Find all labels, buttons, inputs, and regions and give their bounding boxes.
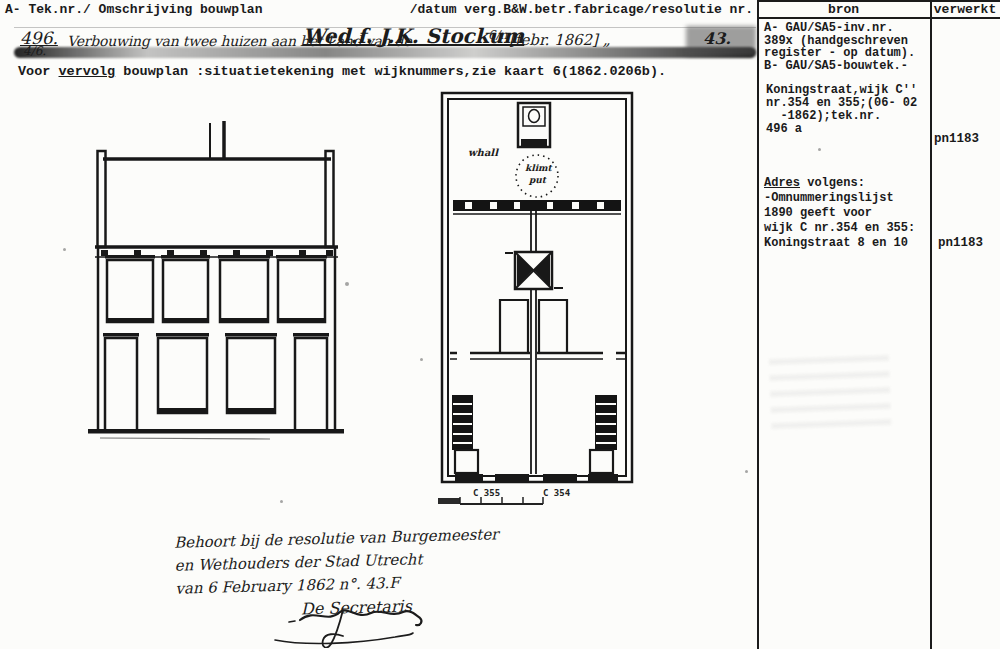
registration-resolution-number: 43. bbox=[703, 29, 731, 48]
scan-noise bbox=[420, 358, 423, 361]
scan-noise bbox=[345, 282, 349, 286]
vervolg-note: Voor vervolg bouwplan :situatietekening … bbox=[18, 64, 666, 79]
bron-line: A- GAU/SA5-inv.nr. bbox=[764, 22, 915, 35]
bron-line: wijk C nr.354 en 355: bbox=[764, 221, 915, 236]
header-left-label: A- Tek.nr./ Omschrijving bouwplan bbox=[5, 2, 262, 17]
note-prefix: Voor bbox=[18, 64, 59, 79]
floor-plan-drawing: whall klimt put C 355 C 354 bbox=[435, 90, 660, 520]
bron-line: 1890 geeft voor bbox=[764, 206, 915, 221]
bron-line: Adres volgens: bbox=[764, 176, 915, 191]
table-header-underline bbox=[757, 17, 1000, 19]
header-right-label: /datum verg.B&W.betr.fabricage/resolutie… bbox=[410, 2, 753, 17]
plan-well-annotation-2: put bbox=[528, 175, 547, 185]
registration-date: [febr. 1862] „ bbox=[509, 31, 611, 49]
bron-block-adres-volgens: Adres volgens: -Omnummeringslijst 1890 g… bbox=[764, 176, 915, 251]
facade-elevation-drawing bbox=[70, 105, 360, 475]
adres-rest: volgens: bbox=[800, 176, 865, 190]
bleed-through-smudge bbox=[769, 350, 892, 429]
registration-sub-number: 4/6. bbox=[23, 44, 46, 58]
signature-scribble bbox=[245, 606, 445, 648]
bron-block-source: A- GAU/SA5-inv.nr. 389x (handgeschreven … bbox=[764, 22, 915, 72]
bron-block-address: Koningstraat,wijk C'' nr.354 en 355;(06-… bbox=[766, 84, 917, 136]
scan-noise bbox=[63, 248, 66, 251]
adres-underlined: Adres bbox=[764, 176, 800, 190]
note-rest: bouwplan :situatietekening met wijknumme… bbox=[115, 64, 666, 79]
plan-room-annotation: whall bbox=[468, 147, 499, 158]
note-underlined: vervolg bbox=[59, 64, 116, 79]
bron-line: Koningstraat 8 en 10 bbox=[764, 236, 915, 251]
scan-noise bbox=[745, 470, 748, 473]
column-header-bron: bron bbox=[759, 2, 928, 17]
bron-line: 496 a bbox=[766, 123, 917, 136]
plan-house-label-right: C 354 bbox=[543, 488, 571, 498]
bron-line: register - op datum). bbox=[764, 47, 915, 60]
verwerkt-value-1: pn1183 bbox=[934, 132, 979, 146]
registration-name-suffix: 6/n bbox=[488, 28, 507, 42]
bron-line: B- GAU/SA5-bouwtek.- bbox=[764, 60, 915, 73]
plan-well-annotation-1: klimt bbox=[525, 163, 553, 173]
verwerkt-value-2: pn1183 bbox=[938, 236, 983, 250]
scanned-record-card: A- Tek.nr./ Omschrijving bouwplan /datum… bbox=[0, 0, 1000, 649]
scan-noise bbox=[280, 500, 283, 503]
plan-house-label-left: C 355 bbox=[473, 488, 500, 498]
bron-line: -Omnummeringslijst bbox=[764, 191, 915, 206]
table-divider-right bbox=[930, 0, 932, 649]
table-divider-left bbox=[757, 0, 759, 649]
scale-bar bbox=[438, 497, 543, 504]
scan-noise bbox=[818, 148, 821, 151]
column-header-verwerkt: verwerkt bbox=[932, 2, 998, 17]
